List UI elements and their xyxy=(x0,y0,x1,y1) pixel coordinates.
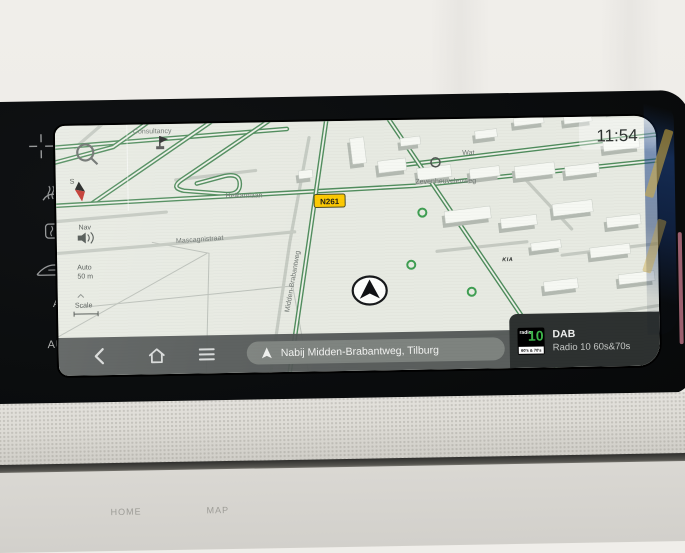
infotainment-screen[interactable]: KIA Consultancy Helkantlaan Zevenheuvele… xyxy=(55,116,660,376)
media-source: DAB xyxy=(552,326,630,339)
home-button[interactable] xyxy=(147,345,167,365)
menu-button[interactable] xyxy=(197,344,217,364)
nav-volume-label: Nav xyxy=(79,224,92,231)
street-label: Wat xyxy=(462,150,474,157)
compass-south-label: S xyxy=(70,179,75,186)
home-icon xyxy=(147,347,167,364)
street-label: Consultancy xyxy=(133,128,172,136)
radio10-logo-number: 10 xyxy=(528,327,544,343)
back-chevron-icon xyxy=(92,347,105,365)
media-station: Radio 10 60s&70s xyxy=(553,340,631,352)
zoom-scale-label: 50 m xyxy=(77,273,93,280)
zoom-mode-label: Auto xyxy=(77,264,92,271)
street-label: Helkantlaan xyxy=(226,192,263,200)
system-bottom-bar: Nabij Midden-Brabantweg, Tilburg xyxy=(58,330,511,376)
radio10-logo: radio 10 60's & 70's HITS xyxy=(517,327,544,354)
nav-arrow-icon xyxy=(261,347,273,359)
hamburger-menu-icon xyxy=(199,347,215,361)
vent-adjuster-button[interactable] xyxy=(28,131,55,161)
nav-status-text: Nabij Midden-Brabantweg, Tilburg xyxy=(281,344,439,359)
street-label: Zevenheuvelenweg xyxy=(415,178,476,186)
dashboard-unit: A/C AUTO xyxy=(0,0,685,520)
dash-home-label: HOME xyxy=(110,507,141,518)
svg-text:N261: N261 xyxy=(320,197,340,206)
kia-dealer-poi: KIA xyxy=(502,257,513,263)
climate-touch-panel: A/C AUTO xyxy=(0,101,61,402)
clock: 11:54 xyxy=(596,126,638,146)
vent-plus-icon xyxy=(28,131,55,161)
nav-status-pill[interactable]: Nabij Midden-Brabantweg, Tilburg xyxy=(247,337,505,364)
radio10-logo-strip: 60's & 70's HITS xyxy=(519,346,544,353)
media-widget[interactable]: radio 10 60's & 70's HITS DAB Radio 10 6… xyxy=(509,311,660,368)
scale-label: Scale xyxy=(75,302,93,309)
dash-trim-lower: HOME MAP xyxy=(0,461,685,553)
vehicle-position-marker xyxy=(352,276,386,305)
back-button[interactable] xyxy=(89,346,109,366)
road-shield-n261: N261 xyxy=(314,194,345,208)
